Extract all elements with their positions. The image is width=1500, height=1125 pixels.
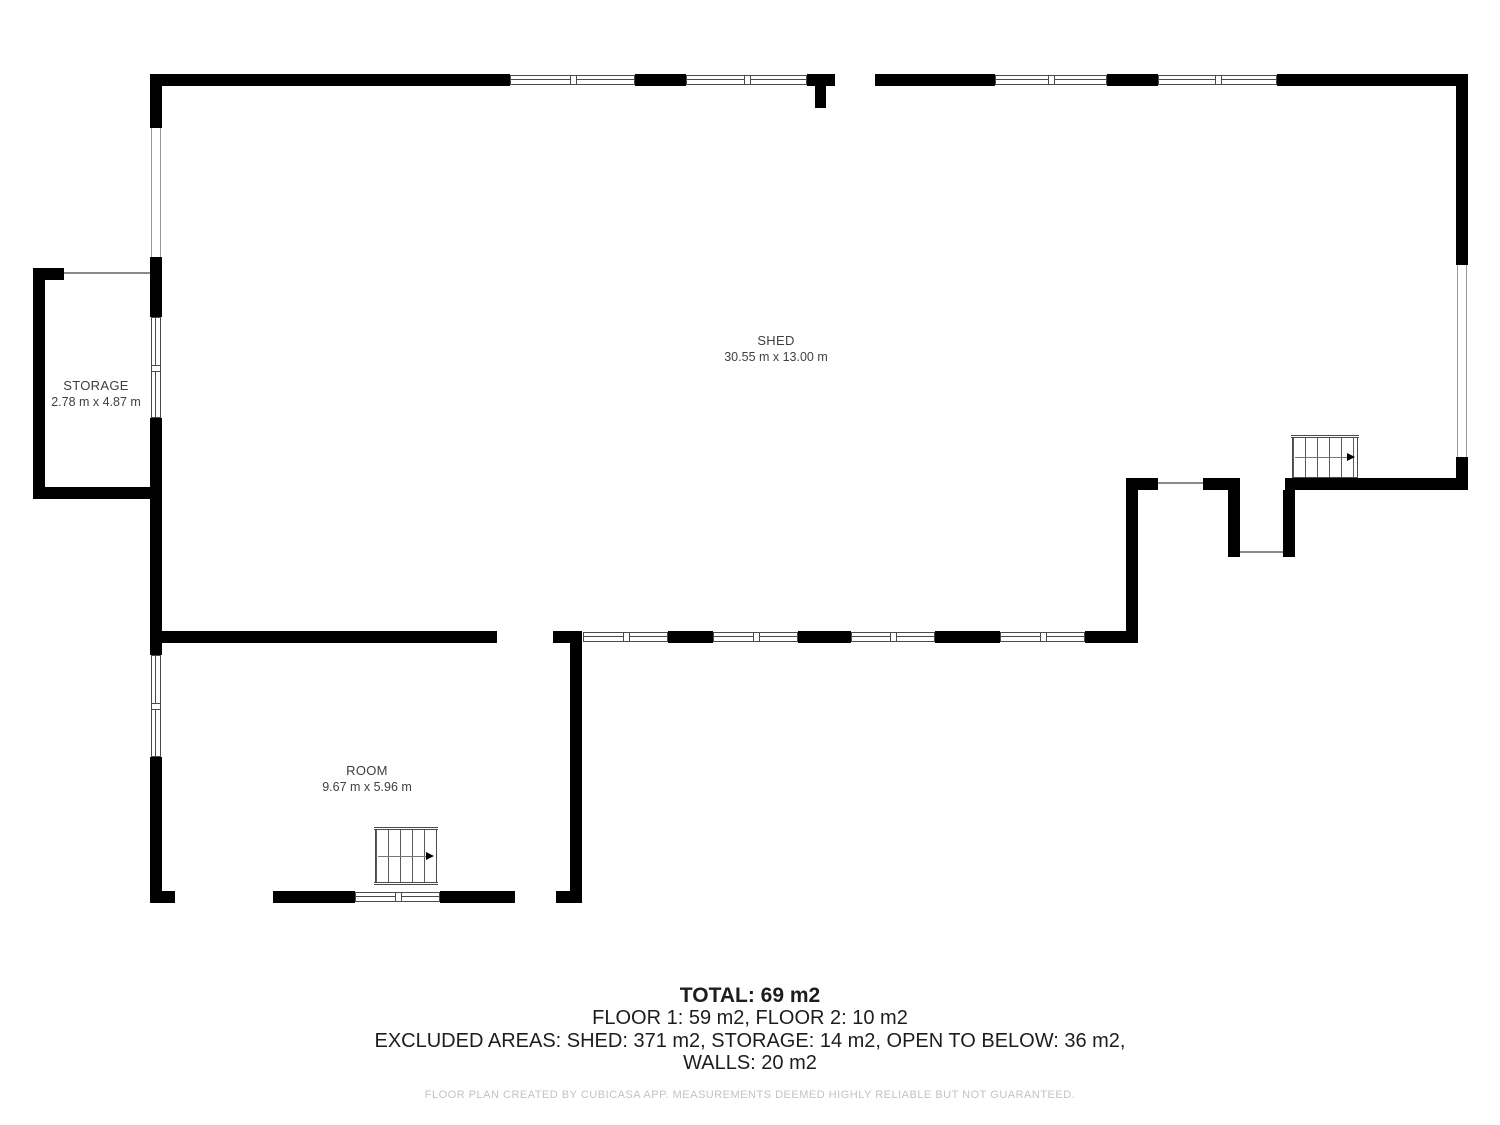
window xyxy=(510,75,635,85)
wall-segment xyxy=(440,891,515,903)
stair-landing-edge xyxy=(374,827,438,830)
excluded-areas: EXCLUDED AREAS: SHED: 371 m2, STORAGE: 1… xyxy=(0,1030,1500,1053)
floor-plan: SHED 30.55 m x 13.00 m STORAGE 2.78 m x … xyxy=(0,0,1500,1125)
wall-segment xyxy=(668,631,713,643)
door-opening-line xyxy=(1158,482,1203,484)
window xyxy=(151,655,161,757)
wall-segment xyxy=(33,487,162,499)
window xyxy=(713,632,798,642)
stair-landing-edge xyxy=(374,882,438,885)
window xyxy=(995,75,1107,85)
floor-areas: FLOOR 1: 59 m2, FLOOR 2: 10 m2 xyxy=(0,1007,1500,1030)
wall-segment xyxy=(150,257,162,317)
wall-segment xyxy=(273,891,355,903)
room-name: ROOM xyxy=(322,763,412,779)
wall-segment xyxy=(556,891,582,903)
stairs xyxy=(1292,435,1358,478)
stair-direction-arrow xyxy=(378,856,426,857)
total-area: TOTAL: 69 m2 xyxy=(0,984,1500,1007)
window xyxy=(851,632,935,642)
wall-segment xyxy=(1277,74,1468,86)
wall-segment xyxy=(570,631,582,903)
room-label-storage: STORAGE 2.78 m x 4.87 m xyxy=(51,378,141,410)
wall-segment xyxy=(150,891,175,903)
wall-segment xyxy=(935,631,1000,643)
window xyxy=(1158,75,1277,85)
window xyxy=(686,75,807,85)
wall-segment xyxy=(1085,631,1138,643)
room-name: STORAGE xyxy=(51,378,141,394)
room-dimensions: 30.55 m x 13.00 m xyxy=(724,349,828,365)
room-dimensions: 9.67 m x 5.96 m xyxy=(322,779,412,795)
wall-segment xyxy=(33,268,45,499)
wall-stub xyxy=(815,74,826,108)
wall-segment xyxy=(1107,74,1158,86)
wall-segment xyxy=(150,418,162,655)
wall-segment xyxy=(33,268,64,280)
disclaimer-text: FLOOR PLAN CREATED BY CUBICASA APP. MEAS… xyxy=(0,1089,1500,1101)
wall-segment xyxy=(1203,478,1240,490)
threshold-line xyxy=(1240,551,1283,553)
stair-landing-edge xyxy=(1291,435,1359,438)
wall-segment xyxy=(155,74,510,86)
wall-segment xyxy=(635,74,686,86)
window xyxy=(355,892,440,902)
walls-area: WALLS: 20 m2 xyxy=(0,1052,1500,1075)
wall-segment xyxy=(875,74,995,86)
room-name: SHED xyxy=(724,333,828,349)
window xyxy=(151,317,161,418)
window-band xyxy=(1457,265,1467,457)
window xyxy=(583,632,668,642)
room-label-shed: SHED 30.55 m x 13.00 m xyxy=(724,333,828,365)
door-opening-line xyxy=(64,272,150,274)
wall-segment xyxy=(150,74,162,128)
window xyxy=(1000,632,1085,642)
wall-segment xyxy=(798,631,851,643)
window-band xyxy=(151,128,161,257)
room-dimensions: 2.78 m x 4.87 m xyxy=(51,394,141,410)
wall-segment xyxy=(1456,74,1468,265)
stairs xyxy=(375,827,437,885)
stair-direction-arrow xyxy=(1295,457,1347,458)
area-summary: TOTAL: 69 m2 FLOOR 1: 59 m2, FLOOR 2: 10… xyxy=(0,984,1500,1075)
wall-segment xyxy=(1126,478,1138,643)
wall-segment xyxy=(150,757,162,903)
wall-segment xyxy=(150,631,497,643)
room-label-room: ROOM 9.67 m x 5.96 m xyxy=(322,763,412,795)
wall-segment xyxy=(1283,490,1295,557)
wall-segment xyxy=(1285,478,1468,490)
